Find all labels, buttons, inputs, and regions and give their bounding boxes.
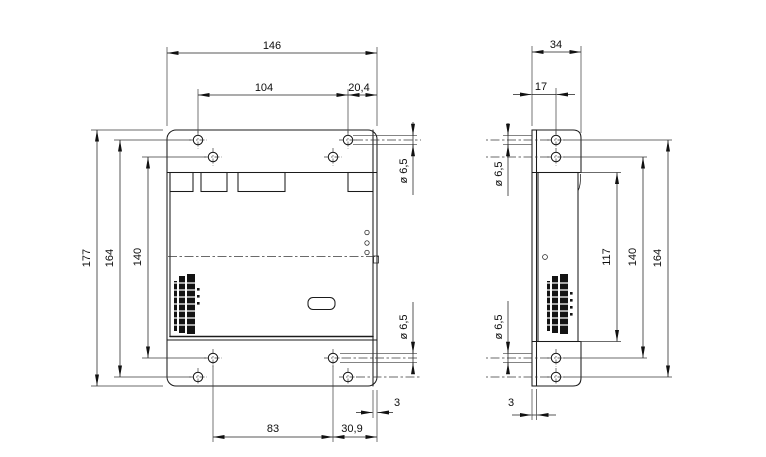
side-view: 34 17 ø 6,5 ø 6,5	[486, 39, 672, 420]
dim-front-edge-lip: 3	[394, 397, 400, 409]
dim-side-hole-offset: 17	[535, 81, 547, 93]
front-view: 146 104 20,4 177 164 140	[81, 40, 421, 442]
front-dimensions: 146 104 20,4 177 164 140	[81, 40, 421, 442]
brand-logo	[173, 274, 200, 334]
drawing-canvas: 146 104 20,4 177 164 140	[0, 0, 766, 457]
front-plate-outline	[167, 130, 377, 386]
dim-side-outer-span-y: 164	[652, 249, 664, 267]
oval-slot	[308, 298, 335, 310]
dim-front-hole-dia-bottom: ø 6,5	[398, 314, 410, 339]
dim-front-width: 146	[263, 40, 281, 52]
dim-side-body-height: 117	[601, 248, 613, 266]
front-mounting-holes	[189, 131, 357, 386]
dim-front-hole-dia-top: ø 6,5	[398, 158, 410, 183]
side-mounting-holes	[547, 131, 565, 386]
side-small-hole	[543, 255, 548, 260]
dim-front-bottom-to-edge: 30,9	[341, 423, 362, 435]
dim-front-height: 177	[81, 249, 93, 267]
dim-front-hole-to-edge-x: 20,4	[348, 82, 369, 94]
led-indicators	[365, 230, 369, 254]
dim-side-hole-dia-top: ø 6,5	[493, 161, 505, 186]
dim-front-bottom-span: 83	[267, 423, 279, 435]
dim-front-hole-span-x: 104	[255, 82, 273, 94]
edge-notch	[374, 256, 379, 263]
terminal-blocks	[170, 173, 373, 192]
dim-side-depth: 34	[550, 39, 562, 51]
brand-logo-side	[546, 274, 573, 334]
dim-side-hole-dia-bottom: ø 6,5	[493, 314, 505, 339]
technical-drawing: 146 104 20,4 177 164 140	[0, 0, 766, 457]
dim-front-outer-span-y: 164	[104, 249, 116, 267]
dim-side-plate-thickness: 3	[508, 397, 514, 409]
side-plate-outline	[532, 130, 581, 386]
dim-front-inner-span-y: 140	[132, 248, 144, 266]
side-dimensions: 34 17 ø 6,5 ø 6,5	[486, 39, 672, 420]
dim-side-inner-span-y: 140	[627, 248, 639, 266]
